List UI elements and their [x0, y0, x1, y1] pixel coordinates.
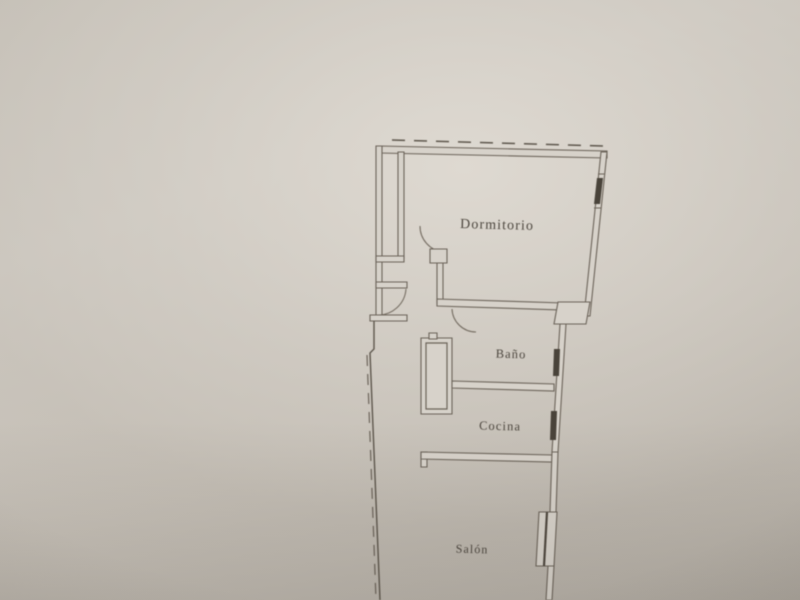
floor-plan-drawing: Dormitorio Baño Cocina Salón — [0, 0, 800, 600]
hall-bottom-wall — [370, 315, 407, 321]
dormitorio-bottom-wall — [437, 299, 563, 310]
bano-bottom-wall — [452, 381, 554, 391]
room-label-cocina: Cocina — [479, 418, 521, 433]
salon-right-wall-lower — [546, 566, 554, 600]
right-wall-junction-block — [554, 302, 590, 324]
entry-door-leaf — [376, 282, 407, 288]
cocina-window — [550, 411, 557, 440]
wall-right-dormitorio — [584, 152, 607, 316]
closet-bottom-wall — [376, 256, 404, 262]
wall-left-exterior — [376, 146, 382, 318]
photo-background: Dormitorio Baño Cocina Salón — [0, 0, 800, 600]
closet-right-wall — [398, 152, 404, 258]
room-label-dormitorio: Dormitorio — [460, 217, 534, 234]
room-label-bano: Baño — [496, 347, 527, 362]
top-boundary-dashed-line — [392, 140, 603, 146]
hall-right-wall — [437, 263, 443, 303]
shaft-top-nub — [429, 333, 437, 339]
salon-right-wall-upper — [550, 452, 558, 512]
cocina-bottom-wall — [421, 452, 552, 462]
dormitorio-door-stub — [430, 249, 447, 263]
bano-window — [553, 349, 560, 376]
dormitorio-door-arc — [420, 226, 443, 252]
party-boundary-solid-line — [370, 321, 380, 600]
wall-top-exterior — [379, 146, 607, 158]
bano-door-arc — [452, 309, 476, 332]
room-label-salon: Salón — [456, 542, 489, 557]
